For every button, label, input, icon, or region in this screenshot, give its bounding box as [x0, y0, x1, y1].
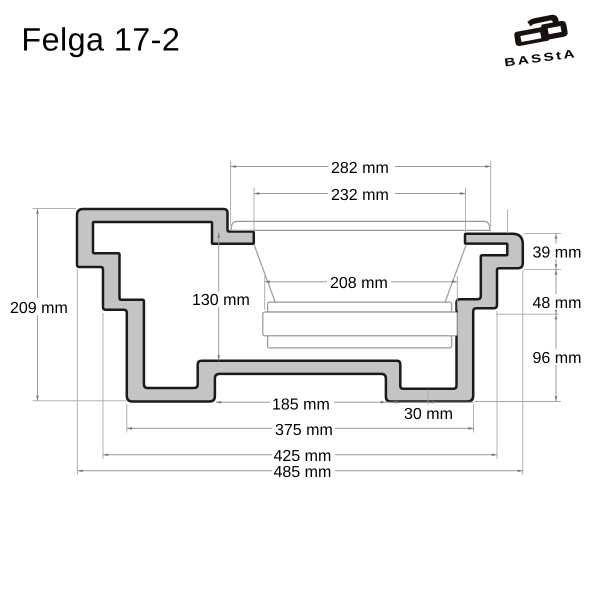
svg-text:96 mm: 96 mm [533, 350, 582, 367]
svg-text:Felga 17-2: Felga 17-2 [21, 22, 180, 58]
svg-text:130 mm: 130 mm [192, 292, 250, 309]
svg-text:185 mm: 185 mm [272, 396, 330, 413]
svg-text:48 mm: 48 mm [533, 295, 582, 312]
svg-text:485 mm: 485 mm [274, 464, 332, 481]
svg-text:30 mm: 30 mm [404, 406, 453, 423]
svg-text:209 mm: 209 mm [10, 300, 68, 317]
svg-text:375 mm: 375 mm [275, 422, 333, 439]
svg-text:208 mm: 208 mm [330, 275, 388, 292]
svg-text:39 mm: 39 mm [533, 244, 582, 261]
svg-text:282 mm: 282 mm [331, 160, 389, 177]
svg-text:425 mm: 425 mm [274, 448, 332, 465]
svg-text:232 mm: 232 mm [331, 187, 389, 204]
